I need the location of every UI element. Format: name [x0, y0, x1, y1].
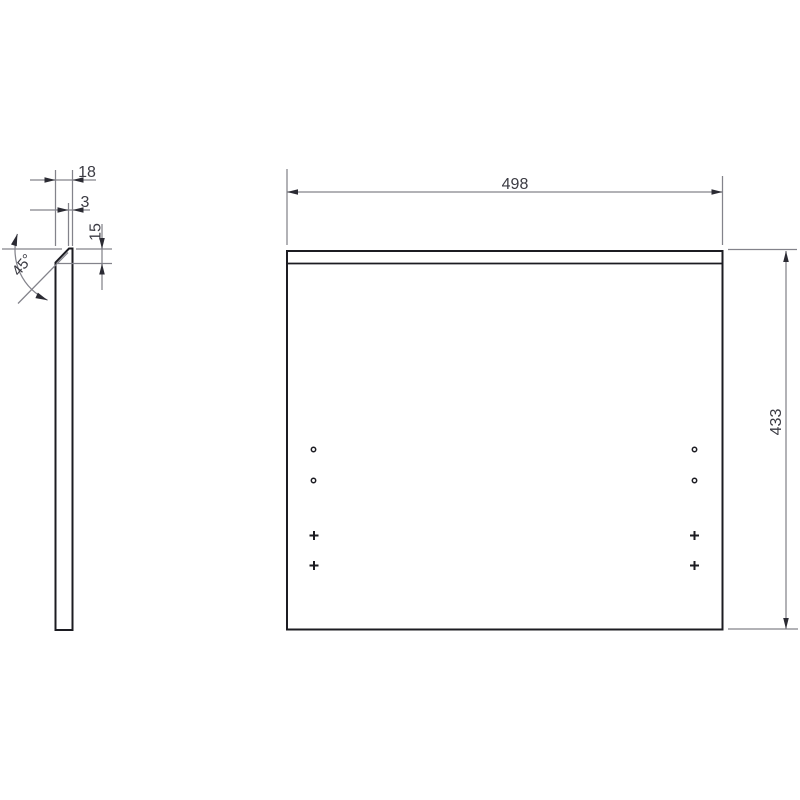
dim-label-top-flat: 3 — [81, 194, 90, 211]
dim-chamfer-height: 15 — [58, 223, 112, 290]
drill-cross-icon — [310, 561, 319, 570]
arrowhead-icon — [287, 189, 298, 195]
dim-label-chamfer-height: 15 — [88, 223, 105, 241]
arrowhead-icon — [11, 234, 17, 246]
side-view: 18 3 15 45° — [2, 164, 112, 630]
front-panel-outline — [287, 251, 723, 630]
dim-label-height: 433 — [768, 409, 785, 436]
side-panel-outline — [56, 249, 73, 631]
dim-label-chamfer-angle: 45° — [9, 251, 37, 279]
drill-cross-icon — [690, 531, 699, 540]
drill-marks-right — [690, 447, 699, 570]
dim-height: 433 — [728, 250, 798, 630]
drill-cross-icon — [310, 531, 319, 540]
drill-marks-left — [310, 447, 319, 570]
dim-chamfer-angle: 45° — [2, 234, 68, 304]
drill-cross-icon — [690, 561, 699, 570]
arrowhead-icon — [783, 251, 789, 262]
front-view: 498 433 — [287, 169, 798, 630]
drawing-canvas: 18 3 15 45° — [0, 0, 800, 800]
drill-point-icon — [692, 447, 696, 451]
arrowhead-icon — [45, 177, 56, 183]
arrowhead-icon — [58, 207, 69, 213]
arrowhead-icon — [712, 189, 723, 195]
dim-label-width: 498 — [502, 176, 529, 193]
dim-label-thickness: 18 — [78, 164, 96, 181]
dim-top-flat: 3 — [30, 194, 90, 246]
arrowhead-icon — [99, 264, 105, 275]
drill-point-icon — [692, 478, 696, 482]
arrowhead-icon — [783, 618, 789, 629]
drill-point-icon — [311, 478, 315, 482]
dim-width: 498 — [287, 169, 723, 245]
technical-drawing-svg: 18 3 15 45° — [0, 0, 800, 800]
drill-point-icon — [311, 447, 315, 451]
